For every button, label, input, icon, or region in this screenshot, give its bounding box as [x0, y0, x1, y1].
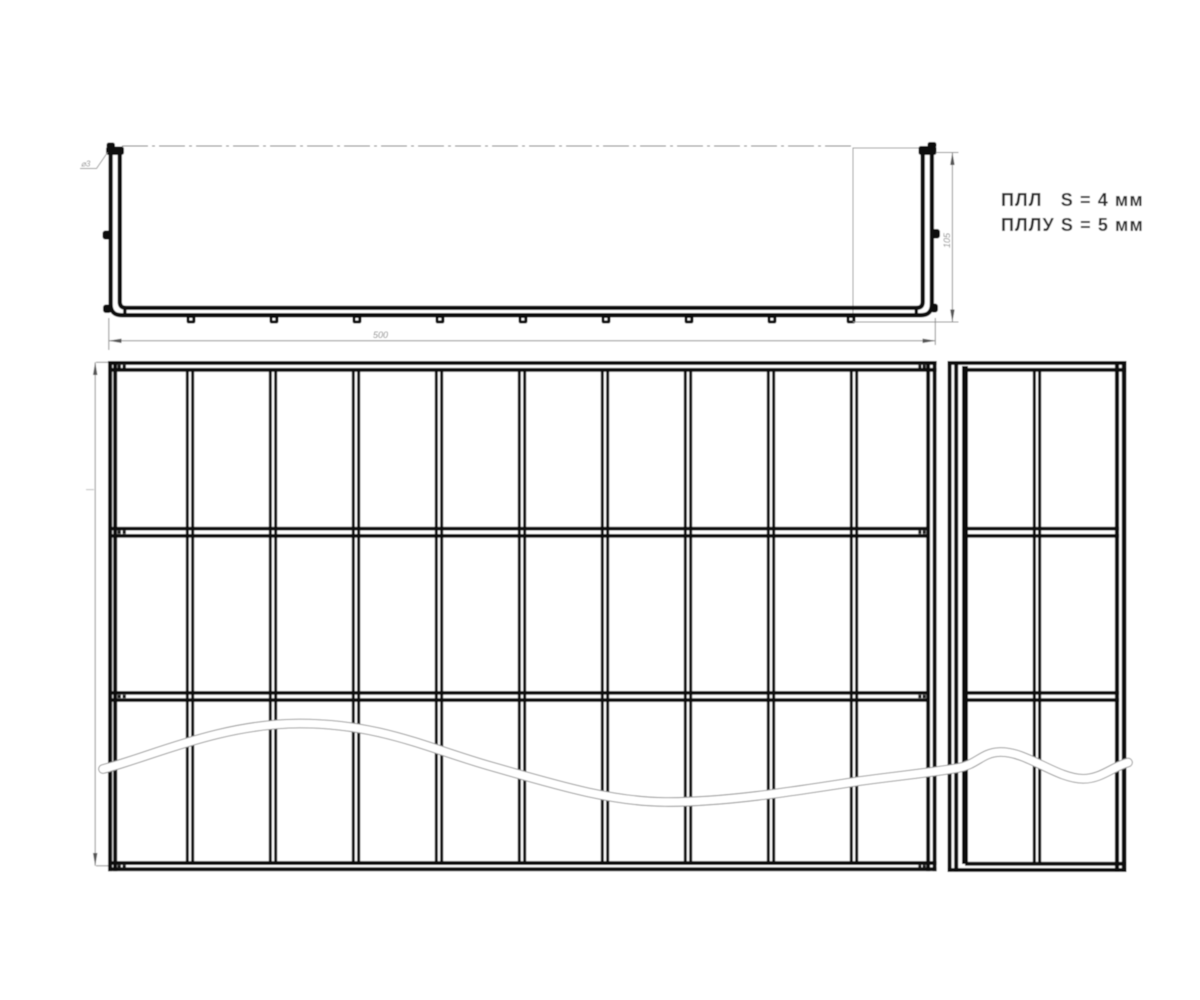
svg-text:ПЛЛУ S = 5 мм: ПЛЛУ S = 5 мм: [1001, 215, 1144, 235]
svg-text:ПЛЛ S = 4 мм: ПЛЛ S = 4 мм: [1001, 190, 1144, 210]
svg-text:105: 105: [942, 232, 952, 248]
svg-text:⌀3: ⌀3: [81, 160, 91, 169]
svg-text:500: 500: [373, 330, 388, 340]
